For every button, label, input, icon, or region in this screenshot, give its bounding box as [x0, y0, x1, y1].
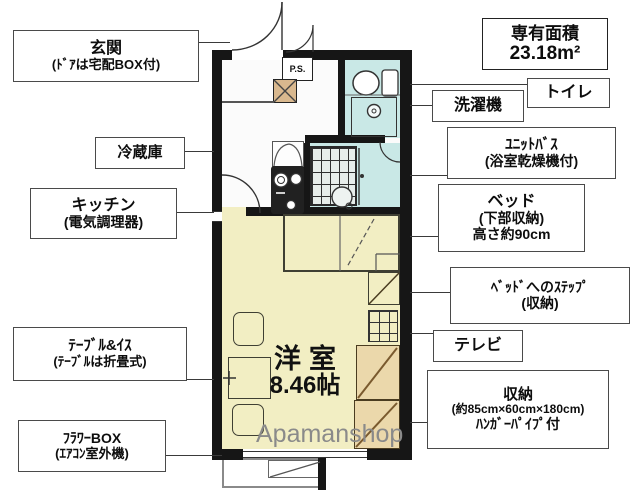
leader-table	[185, 379, 214, 380]
bed	[283, 214, 400, 272]
label-toilet-line1: トイレ	[544, 84, 592, 102]
right-wall	[400, 50, 412, 455]
fridge	[272, 141, 304, 167]
label-table-line1: ﾃｰﾌﾞﾙ&ｲｽ	[68, 338, 131, 355]
label-bed-line1: ベッド	[487, 193, 535, 211]
label-flowerbox-line2: (ｴｱｺﾝ室外機)	[55, 447, 129, 462]
leader-reizouko	[183, 151, 214, 152]
chair-top	[233, 312, 264, 346]
area-box: 専有面積 23.18m²	[482, 18, 608, 70]
toilet-wall	[338, 58, 345, 138]
room-size: 8.46帖	[230, 373, 380, 398]
label-step: ﾍﾞｯﾄﾞへのｽﾃｯﾌﾟ (収納)	[450, 267, 630, 324]
label-step-line2: (収納)	[521, 296, 558, 312]
label-table: ﾃｰﾌﾞﾙ&ｲｽ (ﾃｰﾌﾞﾙは折畳式)	[13, 327, 187, 381]
label-genkan: 玄関 (ﾄﾞｱは宅配BOX付)	[13, 30, 199, 82]
label-step-line1: ﾍﾞｯﾄﾞへのｽﾃｯﾌﾟ	[491, 280, 589, 296]
label-kitchen: キッチン (電気調理器)	[30, 188, 177, 239]
label-tv-line1: テレビ	[454, 337, 502, 355]
leader-shuunou	[410, 422, 427, 423]
bathtub	[310, 146, 357, 206]
area-box-value: 23.18m²	[510, 43, 581, 64]
label-sentakuki: 洗濯機	[432, 90, 524, 122]
left-wall	[212, 50, 222, 460]
entrance-step-line	[222, 101, 274, 103]
room-name: 洋室	[230, 345, 380, 373]
balcony-window	[243, 451, 367, 458]
leader-bed	[410, 236, 438, 237]
label-bed: ベッド (下部収納) 高さ約90cm	[438, 184, 585, 252]
label-reizouko: 冷蔵庫	[95, 137, 185, 169]
pipe-space-label: P.S.	[290, 64, 306, 74]
bed-step	[368, 272, 400, 305]
label-unitbath: ﾕﾆｯﾄﾊﾞｽ (浴室乾燥機付)	[447, 127, 616, 179]
area-box-title: 専有面積	[511, 24, 579, 43]
leader-step	[410, 292, 450, 293]
label-sentakuki-line1: 洗濯機	[454, 97, 502, 115]
label-bed-line2: (下部収納)	[479, 211, 544, 227]
label-genkan-line2: (ﾄﾞｱは宅配BOX付)	[52, 58, 160, 73]
label-unitbath-line2: (浴室乾燥機付)	[485, 154, 578, 170]
watermark: Apamanshop	[256, 420, 416, 449]
label-tv: テレビ	[433, 330, 523, 362]
label-shuunou-line3: ﾊﾝｶﾞｰﾊﾟｲﾌﾟ付	[476, 417, 560, 433]
label-table-line2: (ﾃｰﾌﾞﾙは折畳式)	[53, 355, 146, 370]
label-bed-line3: 高さ約90cm	[473, 227, 551, 243]
leader-toilet	[410, 84, 527, 85]
bottom-wall-right	[367, 449, 412, 460]
label-kitchen-line1: キッチン	[71, 197, 135, 215]
leader-flowerbox	[164, 455, 222, 456]
label-flowerbox: ﾌﾗﾜｰBOX (ｴｱｺﾝ室外機)	[18, 420, 166, 472]
leader-kitchen	[175, 212, 214, 213]
label-kitchen-line2: (電気調理器)	[64, 215, 143, 231]
balcony-side-wall	[318, 458, 326, 490]
washing-machine-pan	[351, 97, 397, 137]
leader-unitbath	[410, 175, 447, 176]
leader-tv	[410, 333, 433, 334]
label-shuunou: 収納 (約85cm×60cm×180cm) ﾊﾝｶﾞｰﾊﾟｲﾌﾟ付	[427, 370, 609, 449]
leader-genkan	[197, 42, 230, 43]
label-reizouko-line1: 冷蔵庫	[117, 145, 162, 162]
floorplan-image: P.S.	[0, 0, 640, 492]
flower-box	[268, 460, 322, 478]
kitchen-unit	[271, 166, 304, 214]
label-toilet: トイレ	[527, 78, 610, 108]
ps-door-arc	[286, 25, 313, 52]
meter-box	[273, 79, 297, 103]
label-unitbath-line1: ﾕﾆｯﾄﾊﾞｽ	[505, 137, 558, 154]
label-genkan-line1: 玄関	[90, 40, 122, 58]
room-label: 洋室 8.46帖	[230, 345, 380, 399]
label-shuunou-line1: 収納	[503, 387, 533, 404]
label-flowerbox-line1: ﾌﾗﾜｰBOX	[63, 431, 121, 447]
kitchen-bath-wall	[303, 143, 310, 207]
pipe-space-box: P.S.	[282, 57, 313, 81]
entrance-door-arc	[232, 2, 282, 50]
leader-sentakuki	[410, 105, 432, 106]
tv-stand	[368, 310, 398, 342]
label-shuunou-line2: (約85cm×60cm×180cm)	[452, 403, 585, 416]
